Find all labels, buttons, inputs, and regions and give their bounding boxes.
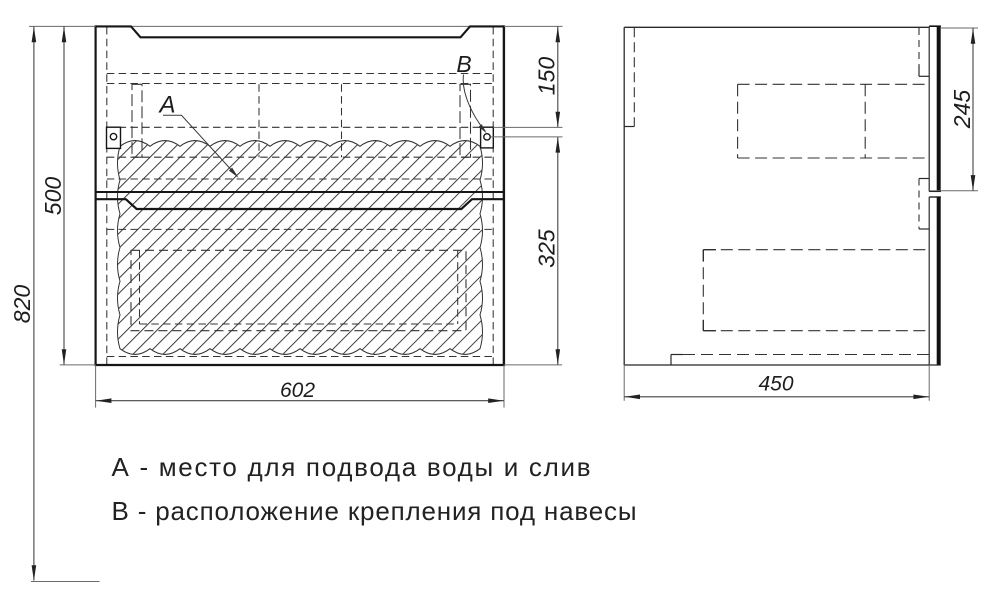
svg-text:602: 602 — [280, 379, 315, 402]
svg-text:A: A — [157, 92, 175, 119]
svg-text:325: 325 — [534, 229, 560, 268]
svg-text:В - расположение крепления под: В - расположение крепления под навесы — [112, 496, 637, 526]
svg-text:245: 245 — [949, 90, 975, 130]
svg-text:820: 820 — [9, 285, 35, 324]
svg-text:500: 500 — [40, 177, 66, 216]
svg-text:150: 150 — [534, 57, 560, 96]
svg-text:B: B — [456, 51, 471, 77]
svg-text:450: 450 — [758, 373, 793, 396]
